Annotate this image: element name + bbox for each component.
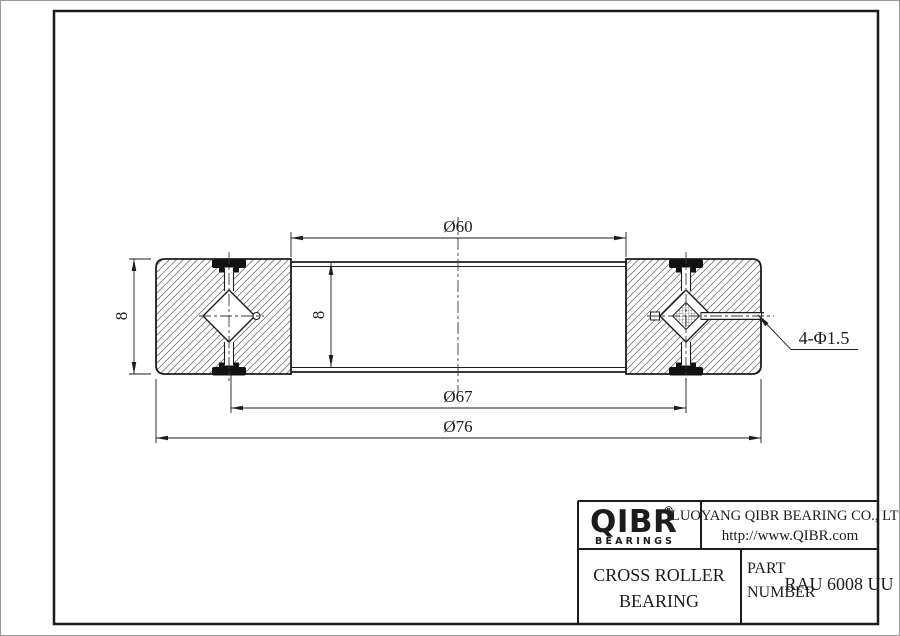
dim-pitch-label: Ø67 (443, 387, 473, 406)
part-label-line1: PART (747, 560, 786, 577)
logo-subtext: BEARINGS (595, 536, 675, 547)
logo: QIBR ® BEARINGS (590, 504, 677, 547)
product-name-line2: BEARING (619, 591, 699, 611)
part-number-value: RAU 6008 UU (784, 574, 893, 594)
part-number-cell: PART NUMBER RAU 6008 UU (747, 560, 894, 601)
dim-section-height: 8 (112, 259, 151, 374)
hole-callout: 4-Φ1.5 (758, 315, 858, 350)
company-url: http://www.QIBR.com (722, 528, 859, 544)
dim-outer-label: Ø76 (443, 417, 472, 436)
dim-pitch-diameter: Ø67 (231, 371, 686, 413)
dim-bore-diameter: Ø60 (291, 217, 626, 257)
drawing-sheet: Ø60 Ø67 Ø76 8 (0, 0, 900, 636)
bearing-section-view (156, 217, 774, 393)
dim-height-label: 8 (112, 312, 131, 321)
dim-bore-label: Ø60 (443, 217, 472, 236)
product-cell: CROSS ROLLER BEARING (593, 565, 725, 611)
company-name: LUOYANG QIBR BEARING CO., LTD (671, 508, 899, 524)
dim-inner-width-label: 8 (309, 311, 328, 320)
title-block: QIBR ® BEARINGS LUOYANG QIBR BEARING CO.… (578, 501, 899, 624)
bore-edge-lines (291, 262, 626, 372)
bearing-drawing-svg: Ø60 Ø67 Ø76 8 (1, 1, 899, 635)
product-name-line1: CROSS ROLLER (593, 565, 725, 585)
dim-inner-ring-width: 8 (309, 263, 333, 367)
hole-callout-label: 4-Φ1.5 (799, 328, 850, 348)
company-cell: LUOYANG QIBR BEARING CO., LTD http://www… (671, 508, 899, 544)
